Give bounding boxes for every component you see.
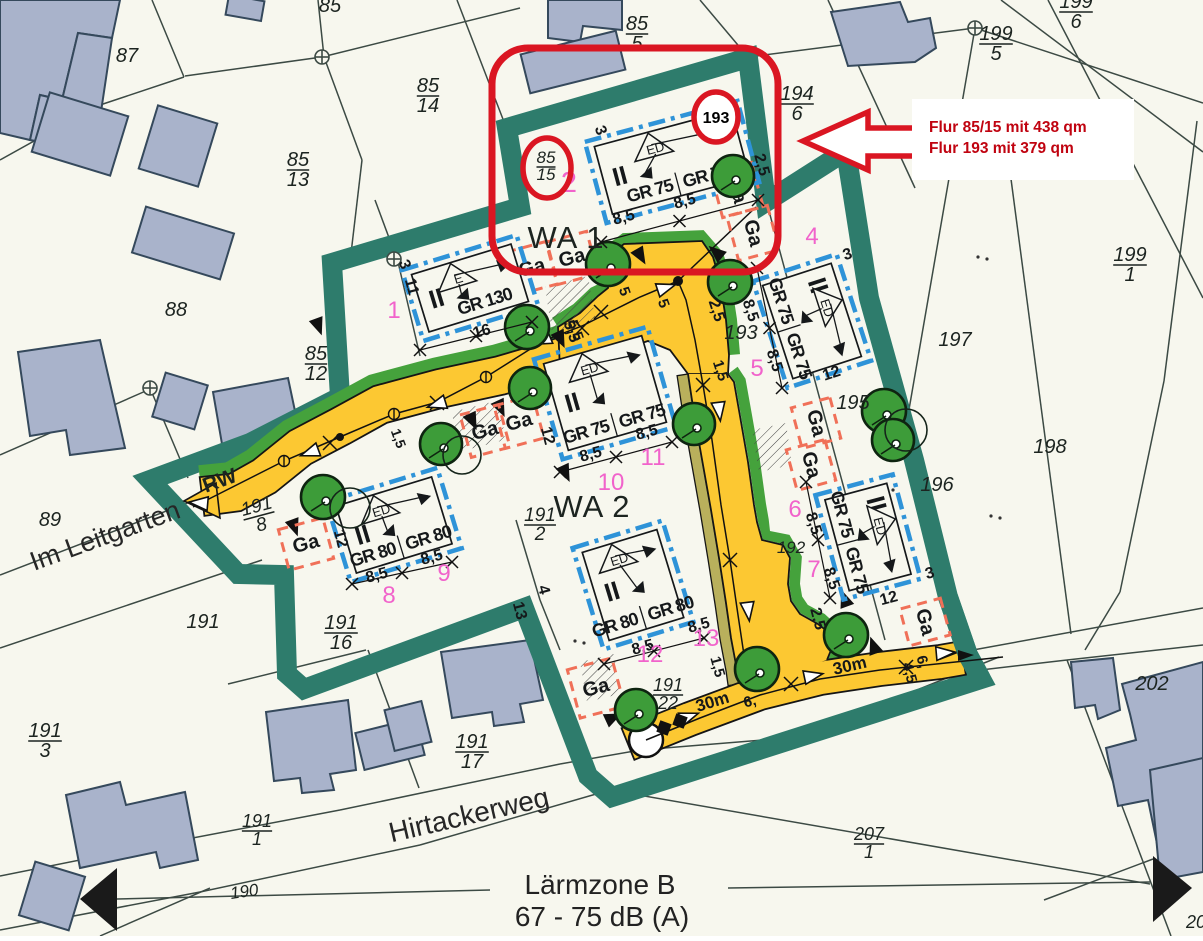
svg-text:11: 11 bbox=[641, 444, 666, 471]
svg-text:85: 85 bbox=[305, 343, 328, 365]
svg-text:12: 12 bbox=[305, 363, 327, 385]
svg-text:13: 13 bbox=[693, 625, 720, 652]
svg-text:3: 3 bbox=[39, 740, 50, 762]
svg-text:193: 193 bbox=[724, 322, 757, 344]
svg-text:195: 195 bbox=[836, 392, 870, 414]
svg-text:20: 20 bbox=[1185, 912, 1203, 932]
svg-text:67 - 75 dB (A): 67 - 75 dB (A) bbox=[515, 901, 689, 932]
svg-text:1: 1 bbox=[864, 842, 874, 862]
svg-text:6: 6 bbox=[791, 103, 803, 125]
svg-text:85: 85 bbox=[417, 75, 440, 97]
svg-text:10: 10 bbox=[598, 469, 625, 496]
svg-text:Flur 85/15 mit 438 qm: Flur 85/15 mit 438 qm bbox=[929, 119, 1087, 136]
svg-text:85: 85 bbox=[319, 0, 342, 17]
svg-text:14: 14 bbox=[417, 95, 439, 117]
svg-text:5: 5 bbox=[990, 43, 1002, 65]
svg-text:1: 1 bbox=[252, 829, 262, 849]
svg-text:6: 6 bbox=[1070, 11, 1082, 33]
svg-text:191: 191 bbox=[324, 612, 357, 634]
svg-text:4: 4 bbox=[805, 223, 818, 250]
svg-text:13: 13 bbox=[287, 169, 309, 191]
svg-text:192: 192 bbox=[777, 538, 806, 557]
svg-text:191: 191 bbox=[653, 675, 683, 695]
svg-text:198: 198 bbox=[1033, 436, 1066, 458]
svg-text:6: 6 bbox=[788, 496, 801, 523]
svg-text:22: 22 bbox=[657, 693, 678, 713]
svg-text:207: 207 bbox=[853, 824, 885, 844]
svg-text:85: 85 bbox=[287, 149, 310, 171]
svg-text:2: 2 bbox=[534, 524, 546, 545]
svg-text:85: 85 bbox=[626, 13, 649, 35]
svg-text:17: 17 bbox=[461, 751, 484, 773]
svg-text:194: 194 bbox=[780, 83, 813, 105]
svg-text:191: 191 bbox=[242, 811, 272, 831]
svg-text:199: 199 bbox=[1113, 244, 1146, 266]
svg-text:15: 15 bbox=[537, 165, 556, 184]
svg-text:196: 196 bbox=[920, 474, 954, 496]
svg-text:87: 87 bbox=[116, 45, 139, 67]
svg-text:191: 191 bbox=[186, 611, 219, 633]
svg-text:5: 5 bbox=[631, 33, 643, 55]
svg-text:199: 199 bbox=[979, 23, 1012, 45]
svg-text:Flur 193 mit 379 qm: Flur 193 mit 379 qm bbox=[929, 140, 1074, 157]
svg-text:88: 88 bbox=[165, 299, 187, 321]
svg-text:9: 9 bbox=[437, 560, 450, 587]
svg-text:WA 1: WA 1 bbox=[528, 220, 605, 255]
svg-text:89: 89 bbox=[39, 509, 61, 531]
svg-text:16: 16 bbox=[330, 632, 353, 654]
svg-text:193: 193 bbox=[703, 110, 730, 127]
svg-text:191: 191 bbox=[524, 505, 556, 526]
svg-text:202: 202 bbox=[1134, 673, 1168, 695]
svg-text:5: 5 bbox=[750, 355, 763, 382]
svg-text:Lärmzone B: Lärmzone B bbox=[525, 869, 676, 900]
svg-text:1: 1 bbox=[1124, 264, 1135, 286]
svg-text:8: 8 bbox=[382, 582, 395, 609]
svg-text:197: 197 bbox=[938, 329, 972, 351]
svg-text:191: 191 bbox=[28, 720, 61, 742]
svg-text:191: 191 bbox=[455, 731, 488, 753]
svg-text:1: 1 bbox=[387, 297, 400, 324]
svg-text:7: 7 bbox=[807, 556, 820, 583]
svg-text:12: 12 bbox=[637, 641, 664, 668]
svg-text:190: 190 bbox=[229, 880, 260, 903]
